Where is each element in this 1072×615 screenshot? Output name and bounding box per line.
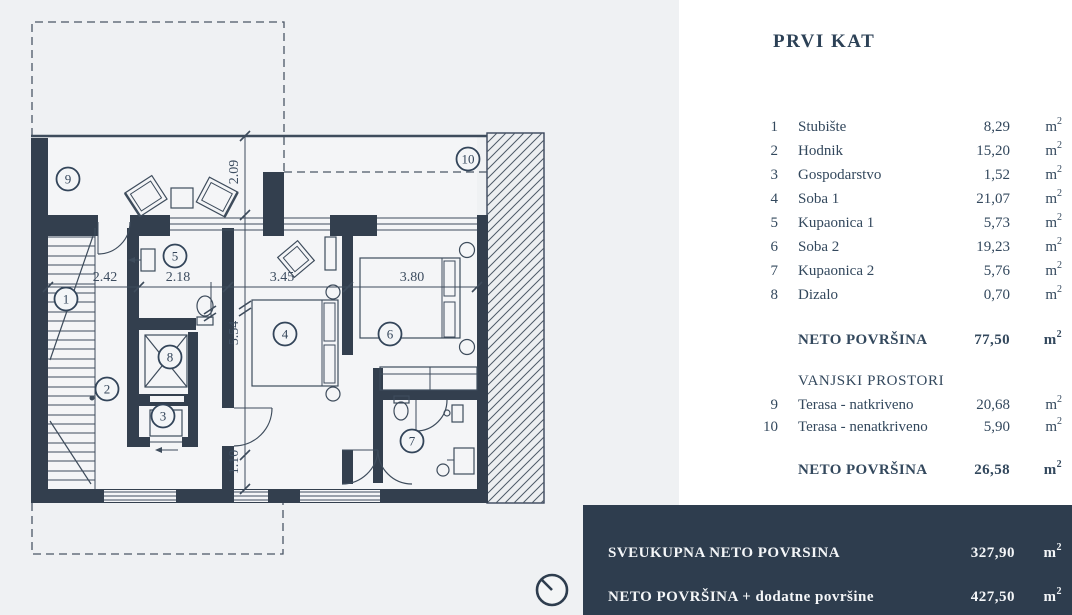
area-row: 7Kupaonica 25,76m2 xyxy=(763,261,1062,281)
dim-label: 1.10 xyxy=(227,450,242,475)
room-marker-9: 9 xyxy=(57,168,80,191)
svg-text:4: 4 xyxy=(282,327,289,342)
area-row: 8Dizalo0,70m2 xyxy=(763,285,1062,305)
svg-text:9: 9 xyxy=(65,172,72,187)
svg-text:1: 1 xyxy=(63,292,70,307)
summary-total-row: SVEUKUPNA NETO POVRSINA 327,90 m2 xyxy=(608,543,1062,562)
outdoor-section-header: VANJSKI PROSTORI xyxy=(763,373,1062,393)
svg-text:5: 5 xyxy=(172,249,179,264)
svg-text:8: 8 xyxy=(167,350,174,365)
room-marker-10: 10 xyxy=(457,148,480,171)
hatch-band xyxy=(487,133,544,503)
room-marker-8: 8 xyxy=(159,346,182,369)
area-row: 10Terasa - nenatkriveno5,90m2 xyxy=(763,417,1062,437)
svg-text:7: 7 xyxy=(409,434,416,449)
neto-interior-row: NETO POVRŠINA77,50m2 xyxy=(763,330,1062,350)
room-marker-2: 2 xyxy=(96,378,119,401)
area-row: 3Gospodarstvo1,52m2 xyxy=(763,165,1062,185)
svg-text:3: 3 xyxy=(160,409,167,424)
svg-text:6: 6 xyxy=(387,327,394,342)
summary-total-row: NETO POVRŠINA + dodatne površine 427,50 … xyxy=(608,587,1062,606)
area-row: 6Soba 219,23m2 xyxy=(763,237,1062,257)
dim-label: 2.18 xyxy=(166,270,191,285)
area-row: 9Terasa - natkriveno20,68m2 xyxy=(763,395,1062,415)
dim-label: 2.42 xyxy=(93,270,118,285)
room-marker-3: 3 xyxy=(152,405,175,428)
dim-label: 5.54 xyxy=(227,321,242,346)
area-row: 1Stubište8,29m2 xyxy=(763,117,1062,137)
dim-label: 3.45 xyxy=(270,270,295,285)
dim-label: 3.80 xyxy=(400,270,425,285)
north-arrow-icon xyxy=(537,575,567,605)
room-marker-1: 1 xyxy=(55,288,78,311)
page: { "title": "PRVI KAT", "unit": {"base": … xyxy=(0,0,1072,615)
room-marker-6: 6 xyxy=(379,323,402,346)
svg-text:2: 2 xyxy=(104,382,111,397)
room-marker-4: 4 xyxy=(274,323,297,346)
summary-bar: SVEUKUPNA NETO POVRSINA 327,90 m2 NETO P… xyxy=(583,505,1072,615)
area-row: 5Kupaonica 15,73m2 xyxy=(763,213,1062,233)
dim-label: 2.09 xyxy=(227,160,242,185)
page-title: PRVI KAT xyxy=(773,31,875,53)
area-row: 2Hodnik15,20m2 xyxy=(763,141,1062,161)
room-marker-7: 7 xyxy=(401,430,424,453)
neto-outdoor-row: NETO POVRŠINA26,58m2 xyxy=(763,460,1062,480)
room-marker-5: 5 xyxy=(164,245,187,268)
floor-plan: 2.42 2.18 3.45 3.80 2.09 5.54 1.10 1 2 3… xyxy=(0,0,583,615)
area-row: 4Soba 121,07m2 xyxy=(763,189,1062,209)
svg-text:10: 10 xyxy=(462,152,475,167)
